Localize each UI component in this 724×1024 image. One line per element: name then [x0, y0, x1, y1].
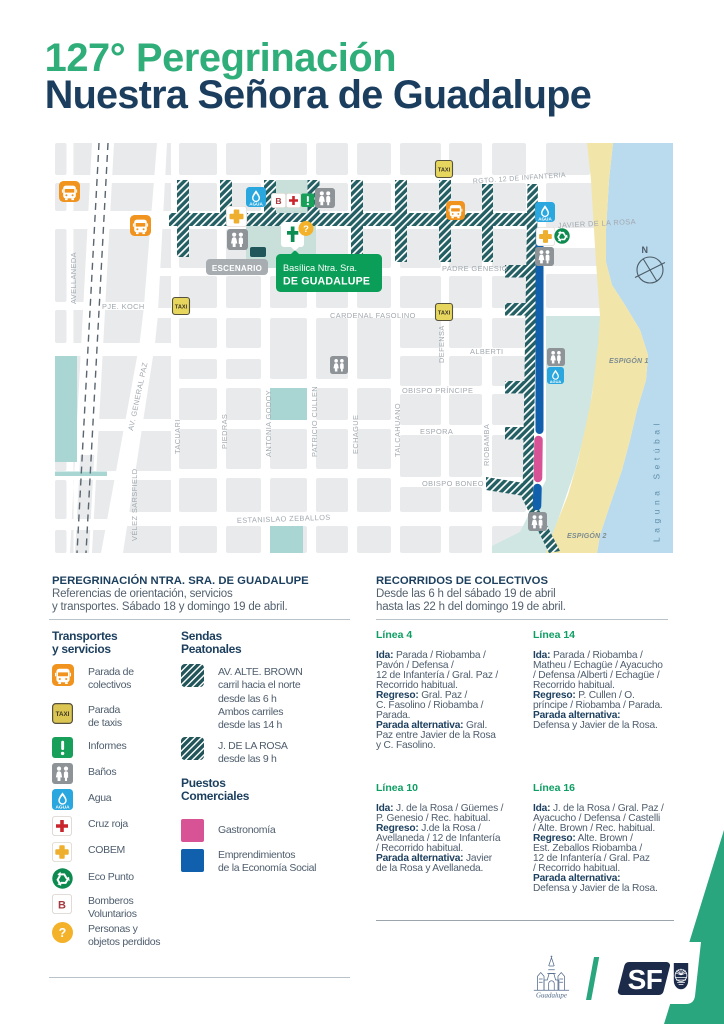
svg-text:SF: SF: [628, 964, 663, 995]
svg-text:Guadalupe: Guadalupe: [536, 992, 567, 1000]
